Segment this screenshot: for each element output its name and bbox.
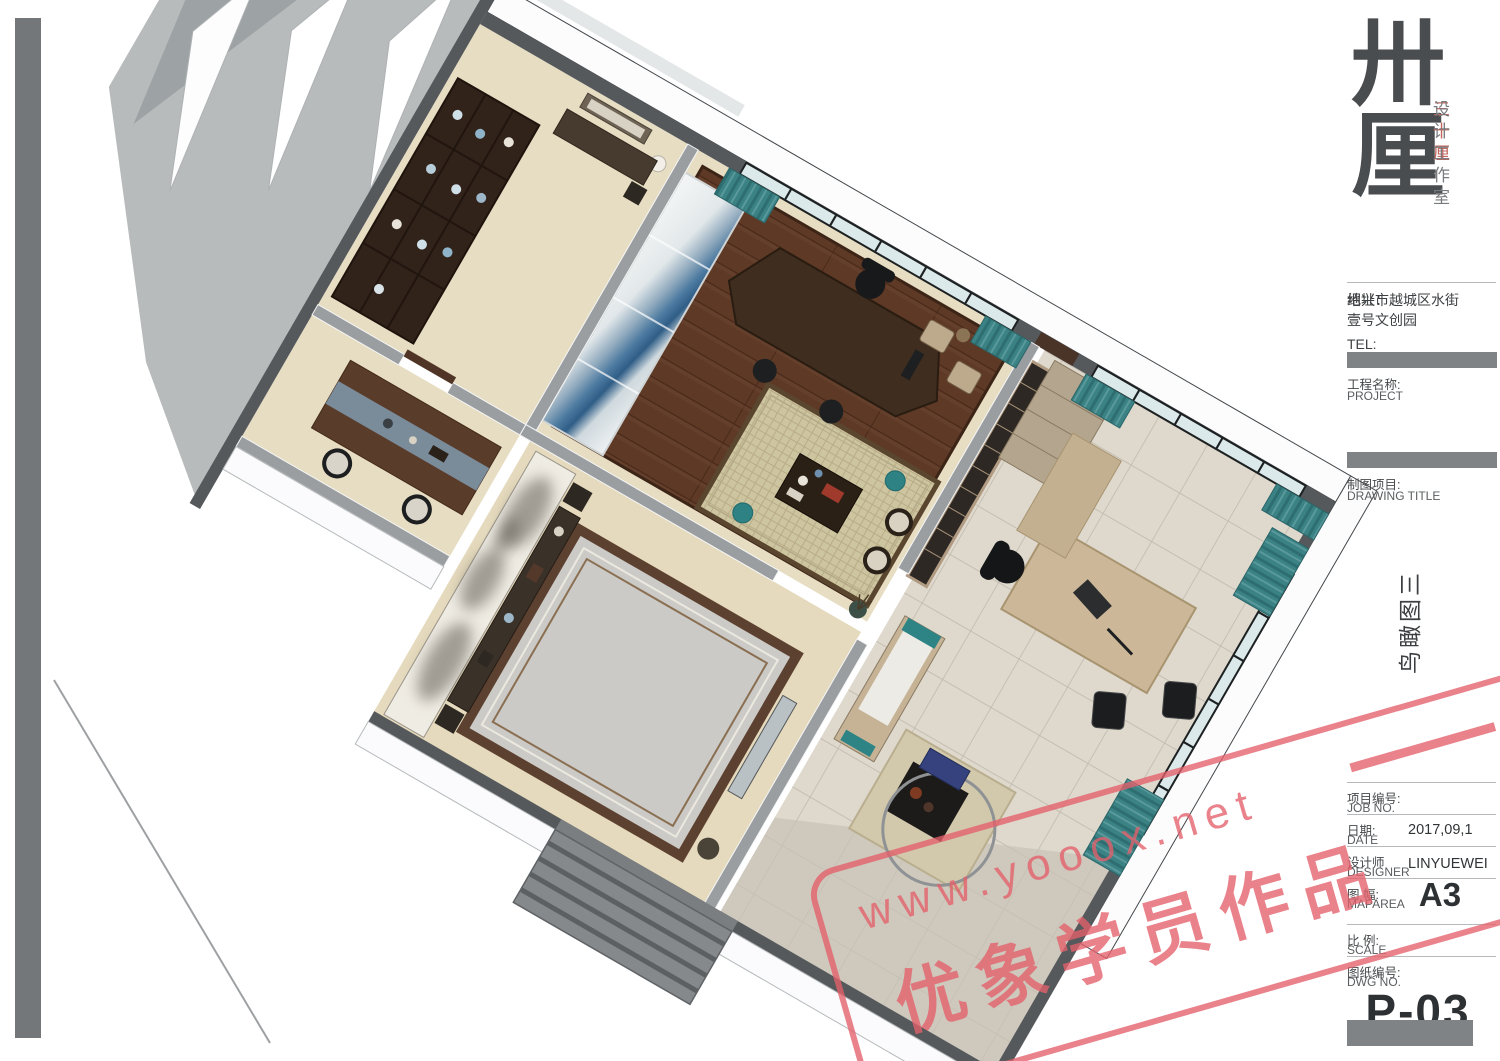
drawing-sheet: 卅厘 三十厘 设计工作室 地址：绍兴市越城区水街 壹号文创园 TEL: 工程名称… bbox=[0, 0, 1500, 1061]
birdseye-render bbox=[0, 0, 1500, 1061]
guest-chair bbox=[1092, 691, 1127, 730]
guest-chair bbox=[1162, 681, 1197, 720]
floor-slab-edge-line bbox=[54, 680, 270, 1043]
